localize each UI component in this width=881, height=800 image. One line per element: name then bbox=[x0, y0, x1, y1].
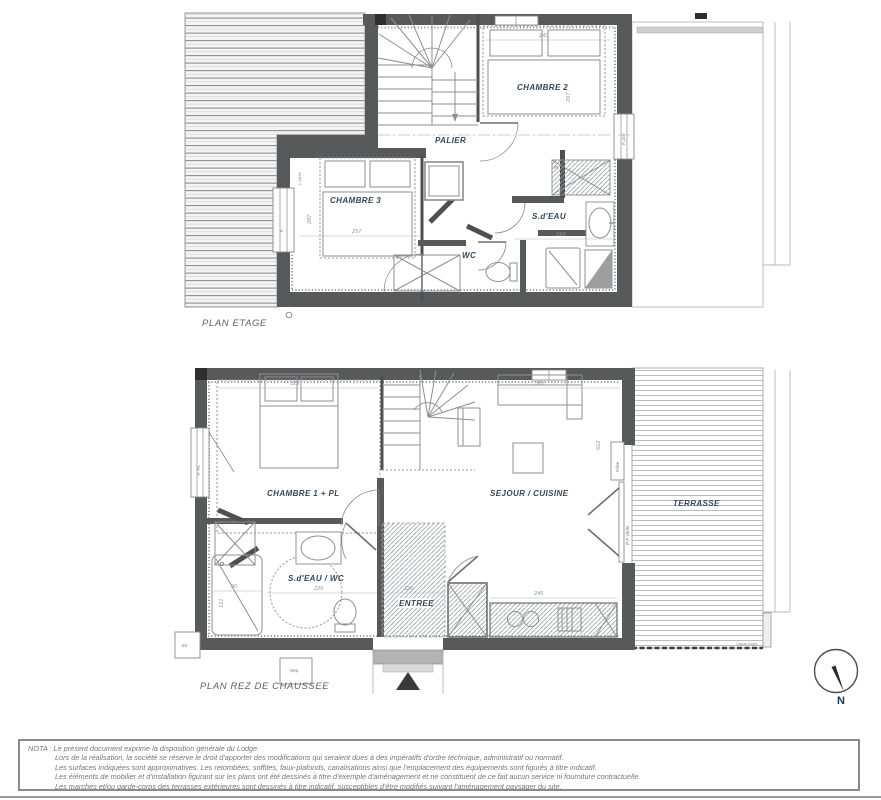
compass-needle bbox=[832, 666, 845, 693]
window-fpriv: F. priv bbox=[614, 114, 634, 159]
svg-text:243: 243 bbox=[538, 33, 549, 39]
room-label-sdeau-wc: S.d'EAU / WC bbox=[288, 574, 344, 583]
skylight bbox=[425, 162, 463, 200]
staircase bbox=[378, 14, 478, 125]
roof-area bbox=[185, 13, 365, 307]
nota-line: Les marches et/ou garde-corps des terras… bbox=[55, 782, 850, 791]
survey-marker bbox=[286, 312, 292, 318]
floorplan-sheet: F. L.Vitrée F. priv bbox=[0, 0, 881, 800]
room-label-chambre3: CHAMBRE 3 bbox=[330, 196, 381, 205]
svg-text:512: 512 bbox=[596, 440, 602, 450]
closet-label: Pl. bbox=[554, 165, 559, 170]
staircase bbox=[382, 370, 480, 470]
terrace-openings: F.fixe P-F Vitrée bbox=[588, 442, 630, 562]
window-label: F. bbox=[279, 229, 284, 232]
room-label-sdeau: S.d'EAU bbox=[532, 212, 566, 221]
terrace: Garde-corps TERRASSE bbox=[632, 368, 790, 648]
duct-triangle bbox=[585, 250, 612, 288]
wardrobe: Pl. bbox=[552, 160, 610, 195]
nota-line: Lors de la réalisation, la société se ré… bbox=[55, 753, 850, 762]
plan-etage-title: PLAN ETAGE bbox=[202, 318, 267, 329]
window-label: F.fixe bbox=[615, 461, 620, 472]
washbasin bbox=[586, 202, 614, 246]
room-label-entree: ENTREE bbox=[399, 599, 434, 608]
nota-line: Les surfaces indiquées sont approximativ… bbox=[55, 763, 850, 772]
svg-text:385: 385 bbox=[535, 381, 545, 387]
utility-box-left: Eo bbox=[175, 632, 200, 658]
room-label-sejour: SEJOUR / CUISINE bbox=[490, 489, 569, 498]
nota-line: NOTA : Le présent document exprime la di… bbox=[28, 744, 850, 753]
table bbox=[513, 443, 543, 473]
chambre1 bbox=[217, 374, 380, 533]
kitchen bbox=[448, 583, 617, 637]
toilet bbox=[486, 263, 517, 282]
nota-box: NOTA : Le présent document exprime la di… bbox=[18, 739, 860, 791]
svg-text:287: 287 bbox=[307, 214, 313, 225]
svg-text:Eo: Eo bbox=[182, 643, 188, 648]
garde-corps-label: Garde-corps bbox=[736, 642, 757, 646]
window-label: P-F Vitrée bbox=[625, 525, 630, 545]
room-label-wc: WC bbox=[462, 251, 476, 260]
north-compass: N bbox=[800, 640, 875, 720]
window-small-label: L.Vitrée bbox=[298, 172, 302, 185]
svg-text:193: 193 bbox=[556, 232, 566, 238]
shower bbox=[546, 248, 580, 288]
entree-area: ENTREE bbox=[382, 523, 445, 637]
svg-text:121: 121 bbox=[219, 599, 225, 608]
svg-text:126: 126 bbox=[404, 586, 414, 592]
room-label-chambre2: CHAMBRE 2 bbox=[517, 83, 568, 92]
north-label: N bbox=[837, 695, 845, 707]
window-left: F. PL bbox=[191, 428, 234, 497]
plan-rdc-drawing: Garde-corps TERRASSE F. PL bbox=[170, 360, 815, 700]
entrance-arrow bbox=[396, 672, 420, 690]
room-label-chambre1: CHAMBRE 1 + PL bbox=[267, 489, 340, 498]
room-label-terrasse: TERRASSE bbox=[673, 499, 720, 508]
room-label-palier: PALIER bbox=[435, 136, 466, 145]
svg-text:267: 267 bbox=[566, 92, 572, 103]
svg-text:Oep: Oep bbox=[290, 668, 299, 673]
svg-text:90: 90 bbox=[231, 584, 238, 590]
plan-rdc-title: PLAN REZ DE CHAUSSEE bbox=[200, 681, 329, 692]
dressing-cross bbox=[394, 255, 460, 291]
sheet-bottom-rule bbox=[0, 796, 881, 798]
nota-line: Les éléments de mobilier et d'installati… bbox=[55, 772, 850, 781]
interior-walls bbox=[207, 478, 384, 637]
svg-text:257: 257 bbox=[351, 229, 362, 235]
svg-text:323: 323 bbox=[290, 381, 300, 387]
plan-etage-drawing: F. L.Vitrée F. priv bbox=[180, 10, 805, 342]
svg-text:245: 245 bbox=[533, 591, 544, 597]
bed-chambre2 bbox=[483, 26, 605, 116]
svg-text:226: 226 bbox=[313, 586, 324, 592]
entrance bbox=[373, 650, 443, 694]
adjacent-unit-outline bbox=[632, 13, 790, 307]
window-label: F. priv bbox=[621, 133, 626, 145]
window-label: F. PL bbox=[196, 465, 201, 475]
bed-chambre3 bbox=[320, 158, 415, 258]
